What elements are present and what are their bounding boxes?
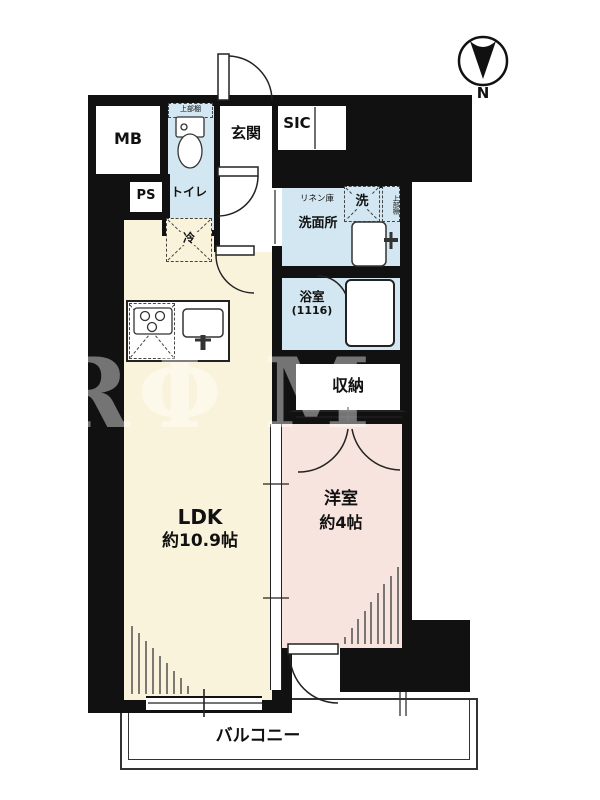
label-bath-name: 浴室 xyxy=(281,290,343,304)
compass-icon xyxy=(459,37,507,85)
label-western-size: 約4帖 xyxy=(292,514,390,532)
label-mb: MB xyxy=(96,130,160,148)
entrance-door-swing xyxy=(218,54,272,100)
washroom-doorway xyxy=(268,188,282,246)
label-compass-n: N xyxy=(468,85,498,102)
label-ldk-size: 約10.9帖 xyxy=(130,532,270,551)
label-fridge: 冷 xyxy=(178,232,200,245)
balcony-window xyxy=(146,696,262,712)
label-toilet-shelf: 上部棚 xyxy=(168,106,213,114)
room-western-floor xyxy=(280,424,402,648)
label-sic: SIC xyxy=(278,115,316,132)
room-toilet xyxy=(162,100,220,236)
floorplan-canvas: R Φ M MB PS 上部棚 トイレ 玄関 SIC リネン庫 洗 上部棚 洗面… xyxy=(0,0,600,800)
room-ldk-floor xyxy=(124,215,272,700)
western-balcony-door-swing xyxy=(288,644,338,703)
label-toilet: トイレ xyxy=(164,186,214,199)
label-storage: 収納 xyxy=(296,377,400,395)
label-washer-shelf: 上部棚 xyxy=(384,190,398,220)
label-bath-size: (1116) xyxy=(281,305,343,317)
label-entrance: 玄関 xyxy=(218,125,274,142)
label-washer: 洗 xyxy=(348,195,376,209)
label-linen: リネン庫 xyxy=(292,195,342,204)
label-western-name: 洋室 xyxy=(292,490,390,509)
label-washroom: 洗面所 xyxy=(282,217,354,231)
partition-sliding-door xyxy=(270,424,282,690)
watermark-letter-1: R xyxy=(50,346,130,442)
watermark-letter-2: Φ xyxy=(138,346,222,442)
label-ldk-name: LDK xyxy=(130,506,270,528)
label-balcony: バルコニー xyxy=(178,727,338,746)
label-ps: PS xyxy=(130,189,162,203)
